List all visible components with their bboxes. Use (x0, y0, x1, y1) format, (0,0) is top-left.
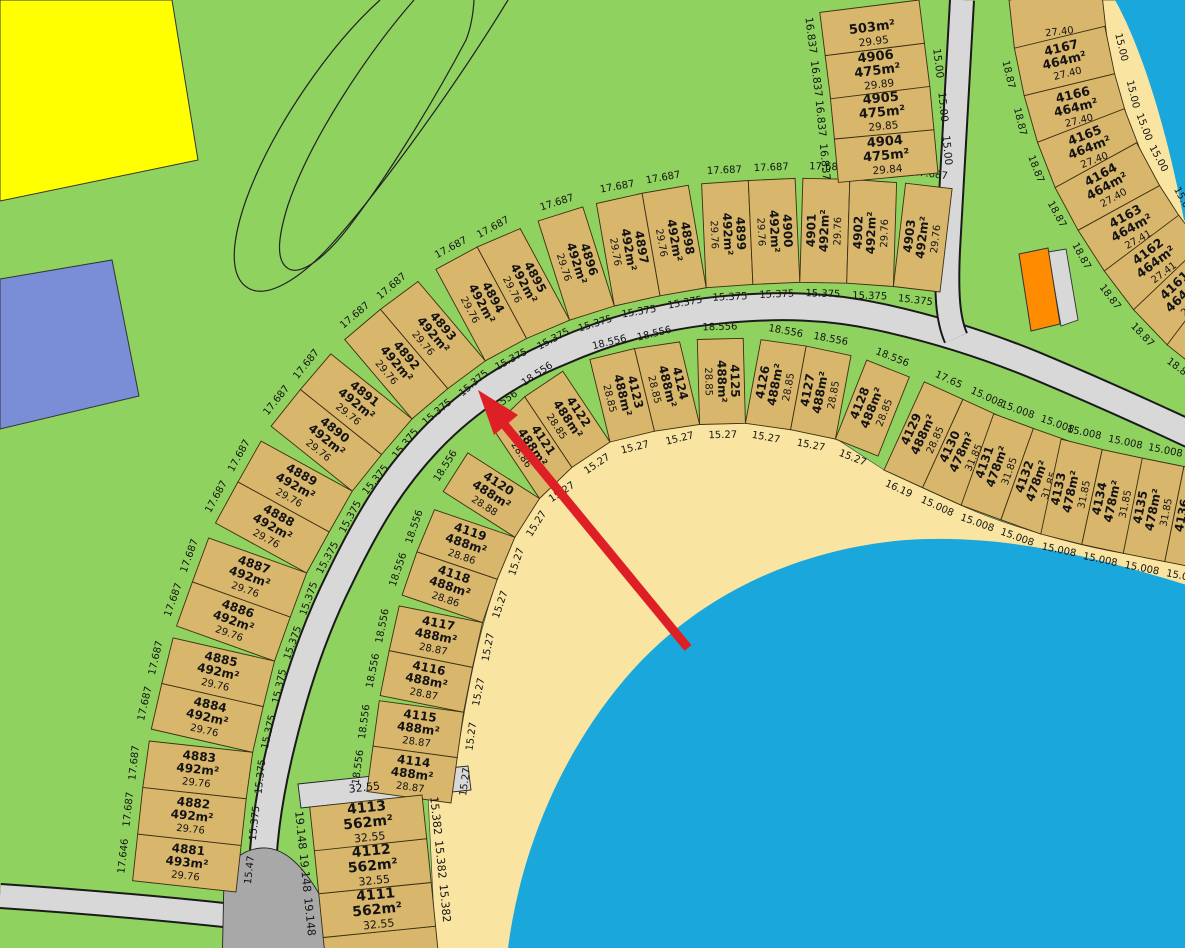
lot-area: 492m² (720, 212, 736, 255)
lot-area: 492m² (767, 210, 783, 253)
lot-depth-dim: 29.76 (754, 217, 766, 246)
edge-dim-outer: 18.556 (702, 321, 737, 333)
edge-dim-inner: 15.375 (805, 288, 840, 300)
edge-dim-inner: 15.375 (759, 289, 794, 302)
lot-area: 492m² (863, 211, 878, 254)
subdivision-plat-map: 4881493m²29.7617.64615.474882492m²29.761… (0, 0, 1185, 948)
edge-dim-outer: 17.687 (707, 164, 742, 177)
lot-depth-dim: 29.76 (832, 217, 844, 246)
edge-dim-inner: 15.375 (852, 290, 887, 302)
edge-dim-outer: 17.687 (753, 162, 788, 175)
lot-depth-dim: 29.76 (708, 220, 720, 249)
lot-area: 488m² (714, 360, 729, 403)
lot-depth-dim: 29.76 (879, 219, 891, 248)
edge-dim-inner: 15.375 (712, 291, 747, 304)
edge-dim-inner: 15.27 (708, 430, 737, 442)
lot-area: 492m² (817, 209, 832, 252)
lot-depth-dim: 28.85 (702, 367, 714, 396)
